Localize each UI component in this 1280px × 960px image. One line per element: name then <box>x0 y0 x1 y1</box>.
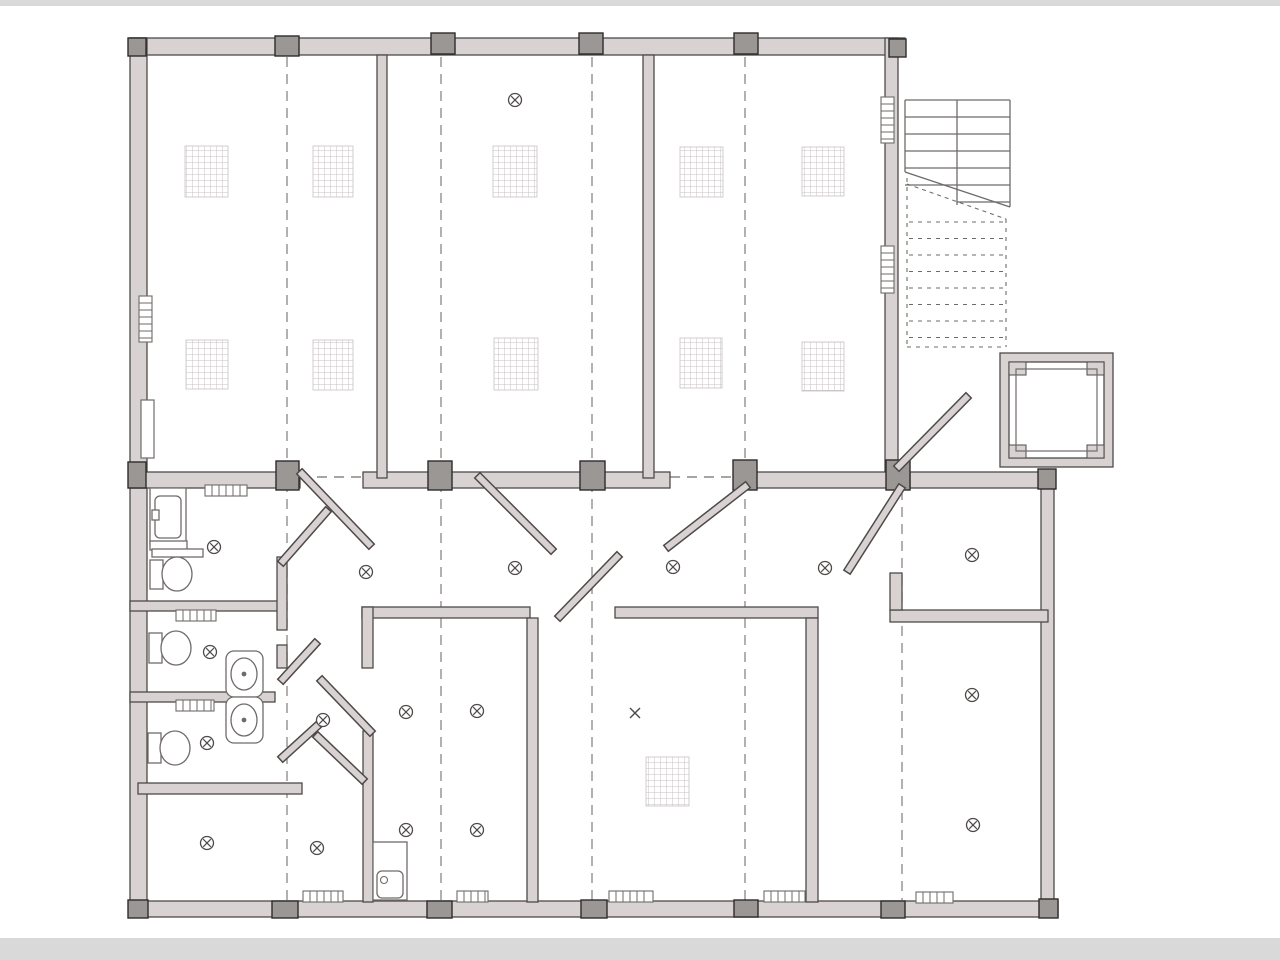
ceiling-grid-panel <box>646 757 689 806</box>
wall <box>377 55 387 478</box>
vent-grille <box>176 700 214 711</box>
toilet-bowl <box>162 557 192 591</box>
light-fixture-symbol <box>400 706 413 719</box>
ceiling-grid-panel <box>680 338 722 388</box>
openings-layer <box>139 97 953 903</box>
column <box>1038 469 1056 489</box>
light-fixture-symbol <box>471 705 484 718</box>
column <box>275 36 299 56</box>
vent-grille <box>457 891 488 902</box>
light-fixture-symbol <box>819 562 832 575</box>
door-leaf-face <box>283 512 326 561</box>
light-fixture-symbol <box>204 646 217 659</box>
column <box>889 39 906 57</box>
wall <box>362 607 530 618</box>
bath-shelf <box>152 549 203 557</box>
door-leaf-face <box>560 557 617 616</box>
door-leaf-face <box>849 489 900 569</box>
wall <box>130 38 905 55</box>
light-fixture-symbol <box>471 824 484 837</box>
wall <box>138 783 302 794</box>
column <box>579 33 603 54</box>
column <box>128 38 146 56</box>
vent-grille <box>303 891 343 902</box>
ceiling-grid-panel <box>680 147 723 197</box>
door-leaf-face <box>669 487 745 546</box>
wall <box>890 610 1048 622</box>
column <box>881 901 905 918</box>
light-fixture-symbol <box>967 819 980 832</box>
wall-niche <box>141 400 154 458</box>
column <box>272 901 298 918</box>
elevator-shaft-inner-wall <box>1009 362 1104 458</box>
wall <box>277 645 287 668</box>
ceiling-grid-panel <box>313 340 353 390</box>
vent-grille <box>176 610 216 621</box>
ceiling-grid-panel <box>802 342 844 391</box>
ceiling-grid-panel <box>802 147 844 196</box>
toilet-tank <box>150 560 163 589</box>
column <box>734 33 758 54</box>
floor-plan-drawing <box>0 0 1280 960</box>
column <box>734 900 758 917</box>
light-fixture-symbol <box>208 541 221 554</box>
wall <box>806 618 818 902</box>
column <box>128 900 148 918</box>
column <box>428 461 452 490</box>
light-fixture-symbol <box>201 737 214 750</box>
ceiling-grid-panel <box>494 338 538 390</box>
door-leaf-face <box>899 398 966 466</box>
light-fixture-symbol <box>201 837 214 850</box>
light-fixture-symbol <box>667 561 680 574</box>
water-heater <box>377 871 403 898</box>
door-leaf-face <box>283 644 315 679</box>
ceiling-grid-panel <box>313 146 353 197</box>
wall <box>1041 472 1054 917</box>
shower-handle <box>152 510 159 520</box>
page-edge-band <box>0 938 1280 960</box>
toilet-tank <box>149 633 162 663</box>
column <box>431 33 455 54</box>
ceiling-grid-panel <box>185 146 228 197</box>
wall <box>277 557 287 630</box>
floor-plan-page <box>0 0 1280 960</box>
wall <box>643 55 654 478</box>
column <box>581 900 607 918</box>
column <box>427 901 452 918</box>
ceiling-grid-panel <box>186 340 228 389</box>
column <box>276 461 299 490</box>
light-fixture-symbol <box>509 562 522 575</box>
ceiling-grid-panel <box>493 146 537 197</box>
column <box>1039 899 1058 918</box>
light-fixture-symbol <box>360 566 373 579</box>
wall <box>362 607 373 668</box>
door-leaf-face <box>283 727 316 757</box>
page-edge-band <box>0 0 1280 6</box>
wall <box>615 607 818 618</box>
light-fixture-symbol <box>311 842 324 855</box>
staircase <box>905 100 1010 347</box>
door-leaf-face <box>318 737 362 779</box>
wall <box>363 472 670 488</box>
toilet-bowl <box>160 731 190 765</box>
wall <box>527 618 538 902</box>
x-marker <box>630 708 640 718</box>
light-fixture-symbol <box>317 714 330 727</box>
wall <box>363 731 373 902</box>
toilet-tank <box>148 733 161 763</box>
wall <box>735 472 893 488</box>
wall <box>890 573 902 610</box>
sink-drain <box>242 718 247 723</box>
light-fixture-symbol <box>966 549 979 562</box>
elevator-shaft <box>1000 353 1113 467</box>
light-fixture-symbol <box>400 824 413 837</box>
toilet-bowl <box>161 631 191 665</box>
light-fixture-symbol <box>509 94 522 107</box>
column <box>128 462 146 488</box>
wall <box>910 472 1055 488</box>
light-fixture-symbol <box>966 689 979 702</box>
column <box>580 461 605 490</box>
sink-drain <box>242 672 247 677</box>
vent-grille <box>916 892 953 903</box>
